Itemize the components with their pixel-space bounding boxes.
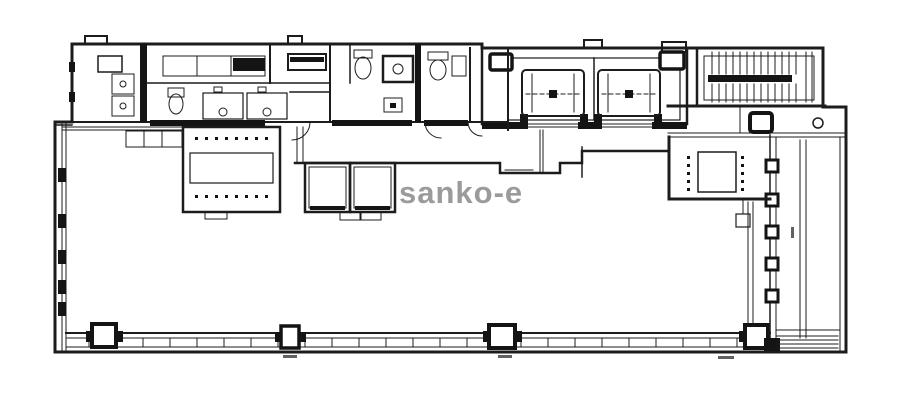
elevator-car-1 <box>522 70 584 116</box>
right-window-wall <box>748 135 780 352</box>
lobby-column <box>750 113 772 132</box>
door-circle <box>813 118 823 128</box>
column <box>281 326 299 348</box>
dimension-marks <box>283 227 794 359</box>
column <box>92 324 116 347</box>
stairwell <box>668 48 825 106</box>
window-mullions <box>89 338 764 347</box>
left-window-wall <box>55 122 72 352</box>
elevator-car-2 <box>598 70 660 116</box>
floor-plan-canvas: sanko-e <box>0 0 902 400</box>
kitchenette-fixtures <box>354 50 466 112</box>
watermark-text: sanko-e <box>399 175 523 210</box>
corridor-walls <box>62 127 668 177</box>
equipment-square <box>698 152 736 192</box>
meeting-table <box>190 153 273 183</box>
toilet-fixtures <box>163 54 326 119</box>
stair-landing <box>708 75 792 82</box>
floor-plan-drawing: sanko-e <box>0 0 902 400</box>
balcony <box>776 137 840 350</box>
elevator-column-right <box>660 52 684 69</box>
meeting-room <box>183 127 280 219</box>
toilet-core <box>69 44 508 140</box>
machine-room <box>669 137 770 227</box>
duct-and-stalls <box>69 56 134 116</box>
right-lobby <box>668 108 846 137</box>
storage-rooms <box>305 163 395 220</box>
elevator-bank <box>482 48 687 129</box>
bottom-window-wall <box>66 324 770 348</box>
column <box>489 325 515 348</box>
chair-dots <box>195 137 268 198</box>
